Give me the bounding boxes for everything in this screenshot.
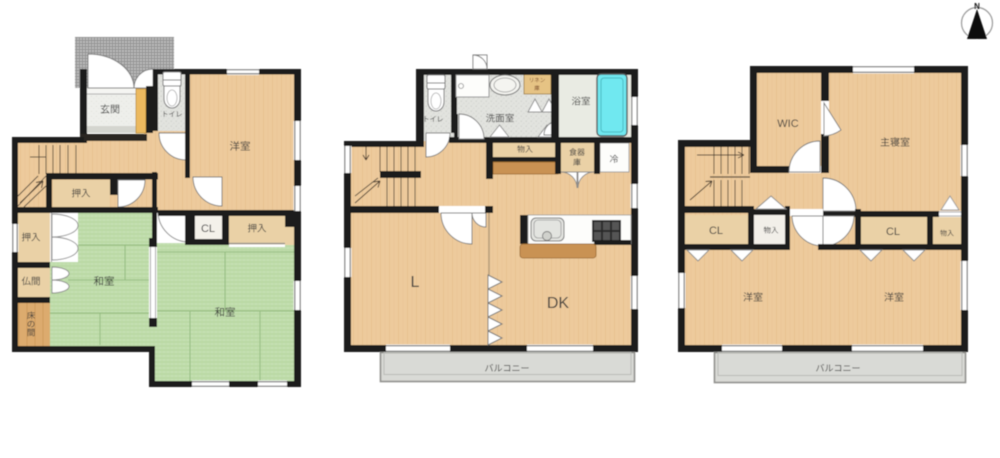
svg-text:CL: CL — [709, 225, 723, 237]
svg-text:L: L — [411, 274, 420, 291]
svg-text:CL: CL — [886, 226, 900, 238]
svg-text:CL: CL — [201, 223, 215, 235]
svg-text:N: N — [974, 2, 980, 11]
svg-text:WIC: WIC — [777, 118, 798, 130]
svg-text:DK: DK — [547, 295, 570, 312]
